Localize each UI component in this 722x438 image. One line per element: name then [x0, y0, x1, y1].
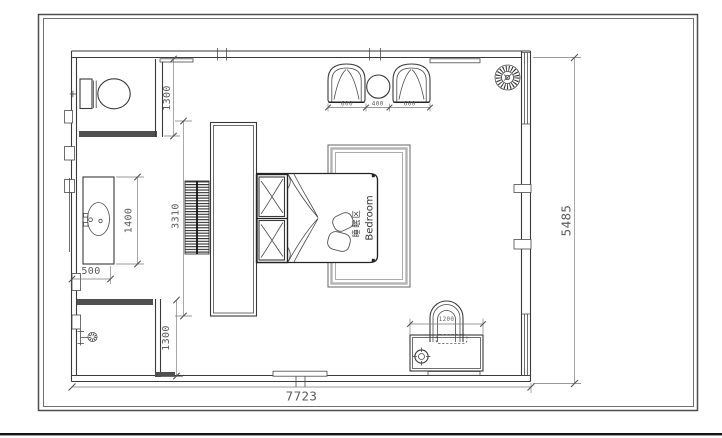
dim-text-600-left: 600: [341, 101, 353, 108]
dim-shower-room: 1300: [161, 297, 183, 379]
ceiling-light-symbol: [413, 348, 431, 366]
shower-head-icon: [78, 330, 98, 346]
dim-vanity-length: 1400: [116, 174, 144, 267]
dim-text-400: 400: [372, 101, 384, 108]
dim-text-vanity-500: 500: [81, 266, 100, 277]
page-edge-line: [0, 433, 722, 435]
wall-pilasters: [65, 111, 81, 330]
dim-text-7723: 7723: [286, 389, 318, 404]
window-top-right: [522, 53, 531, 125]
room-label-en: Bedroom: [365, 195, 376, 240]
toilet-icon: [70, 79, 130, 109]
floor-plan-canvas: 睡眠区 Bedroom 1300 1400: [0, 0, 722, 438]
dim-text-vanity-1400: 1400: [124, 208, 135, 234]
tv-hatch-panel: [185, 181, 209, 254]
bed-corner-dot: [372, 259, 375, 262]
dim-toilet-room: 1300: [162, 56, 180, 139]
right-wall-jogs: [514, 185, 531, 250]
dim-overall-width: 7723: [69, 383, 535, 404]
dim-text-shower-1300: 1300: [161, 325, 172, 351]
tv-cabinet: [211, 123, 257, 317]
floorplan-screenshot: 睡眠区 Bedroom 1300 1400: [0, 0, 722, 438]
bed-corner-dot: [372, 174, 375, 177]
bed: 睡眠区 Bedroom: [257, 174, 378, 263]
round-side-table: [367, 75, 390, 98]
room-label-zh: 睡眠区: [352, 209, 361, 238]
armchair-left: [328, 64, 365, 103]
window-bottom-right: [522, 314, 531, 376]
dim-text-3310: 3310: [171, 203, 182, 229]
vanity-sink-icon: [83, 177, 114, 264]
dim-desk: 1200: [407, 317, 486, 334]
dim-text-5485: 5485: [559, 205, 574, 237]
armchair-right: [393, 64, 430, 103]
dim-text-toilet-1300: 1300: [162, 85, 173, 111]
desk: [410, 335, 483, 375]
potted-plant-icon: [495, 65, 520, 90]
dim-text-600-right: 600: [404, 101, 416, 108]
dim-text-1200: 1200: [439, 317, 455, 323]
dim-overall-height: 5485: [533, 54, 581, 387]
